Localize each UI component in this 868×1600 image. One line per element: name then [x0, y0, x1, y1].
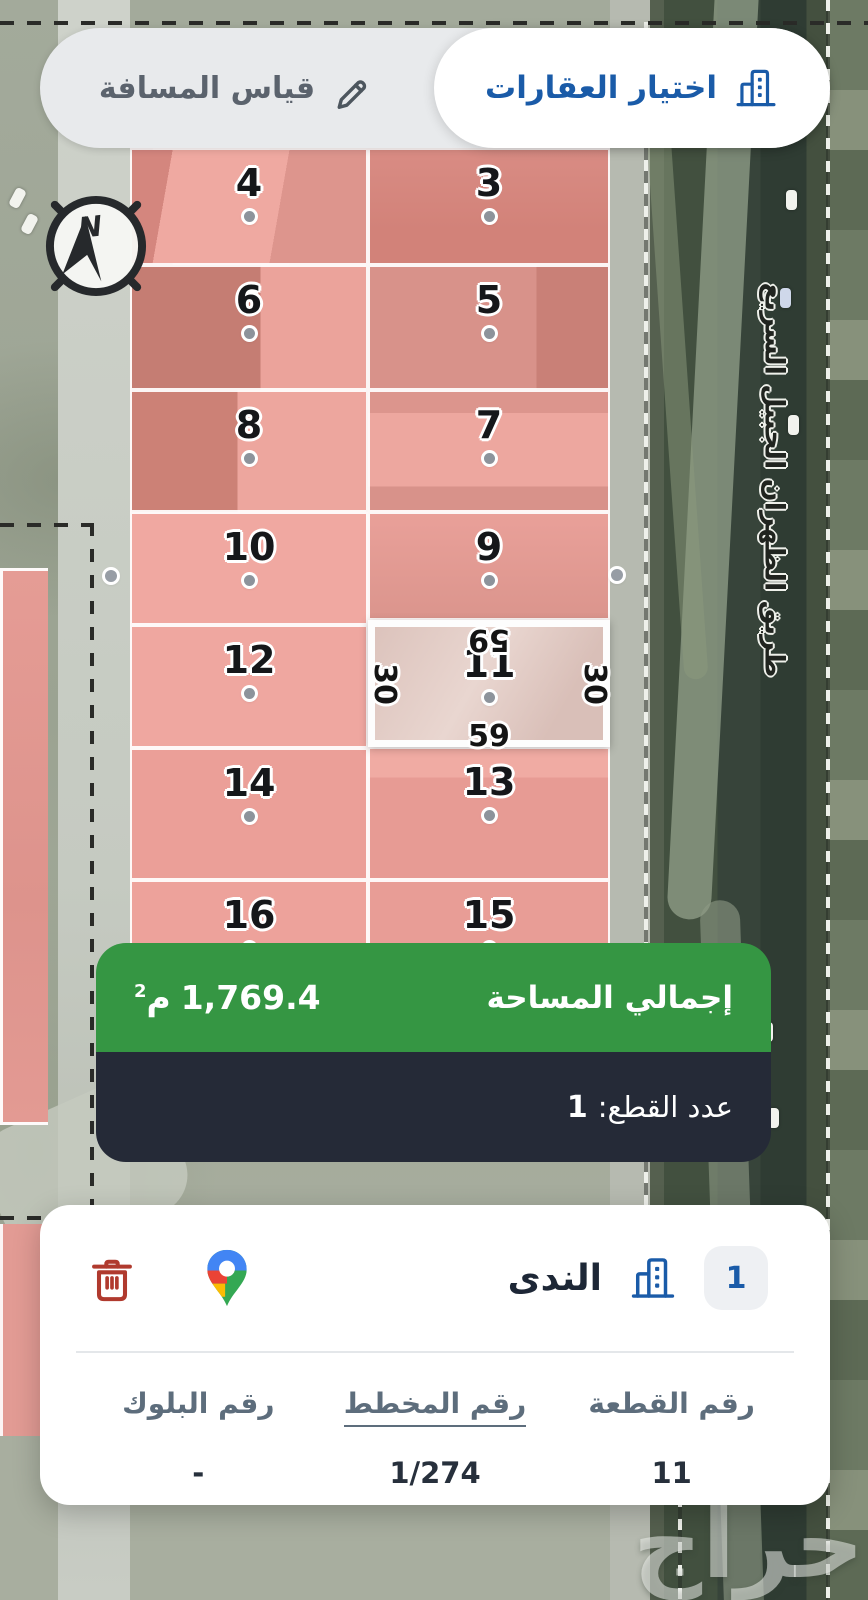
parcel-number: 4: [236, 164, 262, 202]
parcel-count-value: 1: [567, 1090, 588, 1125]
parcel-7[interactable]: 7: [368, 390, 610, 512]
adjacent-parcel-block: [0, 568, 48, 1125]
property-card: 1 الندى: [40, 1205, 830, 1505]
table-header-row: رقم القطعة رقم المخطط رقم البلوك: [40, 1387, 830, 1420]
parcel-dot: [484, 810, 495, 821]
parcel-dot: [244, 328, 255, 339]
building-icon: [628, 1253, 678, 1303]
parcel-11-selected[interactable]: 11 59 59 30 30: [368, 620, 610, 747]
parcel-number: 12: [223, 641, 276, 679]
parcel-dot: [484, 575, 495, 586]
parcel-dot: [244, 688, 255, 699]
car: [786, 190, 797, 210]
index-badge: 1: [704, 1246, 768, 1310]
boundary-dot: [611, 569, 623, 581]
parcel-number: 6: [236, 281, 262, 319]
parcel-dot: [244, 453, 255, 464]
parcel-6[interactable]: 6: [130, 265, 368, 390]
parcel-4[interactable]: 4: [130, 148, 368, 265]
google-maps-pin-icon: [204, 1248, 250, 1308]
dimension-left: 30: [369, 663, 399, 705]
card-divider: [76, 1351, 794, 1353]
dimension-right: 30: [579, 663, 609, 705]
parcel-dot: [484, 328, 495, 339]
boundary-dashed-left: [90, 523, 94, 1218]
header-block-number: رقم البلوك: [80, 1387, 317, 1420]
parcel-14[interactable]: 14: [130, 748, 368, 880]
tab-measure-distance[interactable]: قياس المسافة: [40, 28, 434, 148]
header-parcel-number: رقم القطعة: [553, 1387, 790, 1420]
parcel-number: 3: [476, 164, 502, 202]
value-plan-number: 1/274: [317, 1456, 554, 1490]
parcel-number: 13: [463, 763, 516, 801]
adjacent-parcel-block: [0, 1224, 42, 1436]
parcel-dot: [244, 575, 255, 586]
parcel-number: 8: [236, 406, 262, 444]
value-block-number: -: [80, 1456, 317, 1490]
parcel-8[interactable]: 8: [130, 390, 368, 512]
parcel-number: 16: [223, 896, 276, 934]
parcel-number: 10: [223, 528, 276, 566]
parcel-number: 9: [476, 528, 502, 566]
dimension-top: 59: [468, 624, 510, 654]
map-canvas[interactable]: طريق الظهران الجبيل السريع 4 3 6 5 8 7 1…: [0, 0, 868, 1600]
total-area-bar: إجمالي المساحة 1,769.4 م2: [96, 943, 771, 1052]
parcel-13[interactable]: 13: [368, 747, 610, 880]
parcel-number: 7: [476, 406, 502, 444]
trash-icon: [86, 1252, 138, 1304]
pencil-icon: [331, 66, 375, 110]
parcel-dot: [484, 453, 495, 464]
compass-control[interactable]: N: [34, 184, 158, 308]
parcel-10[interactable]: 10: [130, 512, 368, 625]
parcel-12[interactable]: 12: [130, 625, 368, 748]
parcel-dot: [244, 211, 255, 222]
parcel-number: 15: [463, 896, 516, 934]
parcel-3[interactable]: 3: [368, 148, 610, 265]
tab-label: اختيار العقارات: [485, 70, 717, 106]
tab-select-properties[interactable]: اختيار العقارات: [434, 28, 830, 148]
parcel-dot: [244, 811, 255, 822]
mode-toolbar: قياس المسافة اختيار العقارات: [40, 28, 830, 148]
property-card-header: 1 الندى: [40, 1205, 830, 1351]
table-value-row: 11 1/274 -: [40, 1456, 830, 1490]
parcel-5[interactable]: 5: [368, 265, 610, 390]
total-area-value: 1,769.4 م2: [134, 978, 321, 1017]
parcel-dot: [484, 211, 495, 222]
open-google-maps-button[interactable]: [204, 1248, 250, 1308]
total-area-label: إجمالي المساحة: [486, 980, 733, 1016]
boundary-dashed-top: [0, 21, 868, 25]
parcel-number: 14: [223, 764, 276, 802]
parcel-9[interactable]: 9: [368, 512, 610, 620]
boundary-dashed-left-horizontal: [0, 523, 92, 527]
road-name-label: طريق الظهران الجبيل السريع: [759, 283, 790, 678]
building-icon: [733, 65, 779, 111]
compass-icon: N: [34, 184, 158, 308]
parcel-count-bar: عدد القطع: 1: [96, 1052, 771, 1162]
tab-label: قياس المسافة: [99, 71, 315, 106]
dimension-bottom: 59: [468, 722, 510, 752]
property-name: الندى: [508, 1258, 602, 1299]
highway-far-strip: [828, 0, 868, 1600]
parcel-count-label: عدد القطع:: [598, 1090, 733, 1124]
delete-property-button[interactable]: [86, 1252, 138, 1304]
parcel-number: 5: [476, 281, 502, 319]
car: [788, 415, 799, 435]
header-plan-number[interactable]: رقم المخطط: [317, 1387, 554, 1420]
boundary-dot: [105, 570, 117, 582]
value-parcel-number: 11: [553, 1456, 790, 1490]
parcel-dot: [484, 692, 495, 703]
